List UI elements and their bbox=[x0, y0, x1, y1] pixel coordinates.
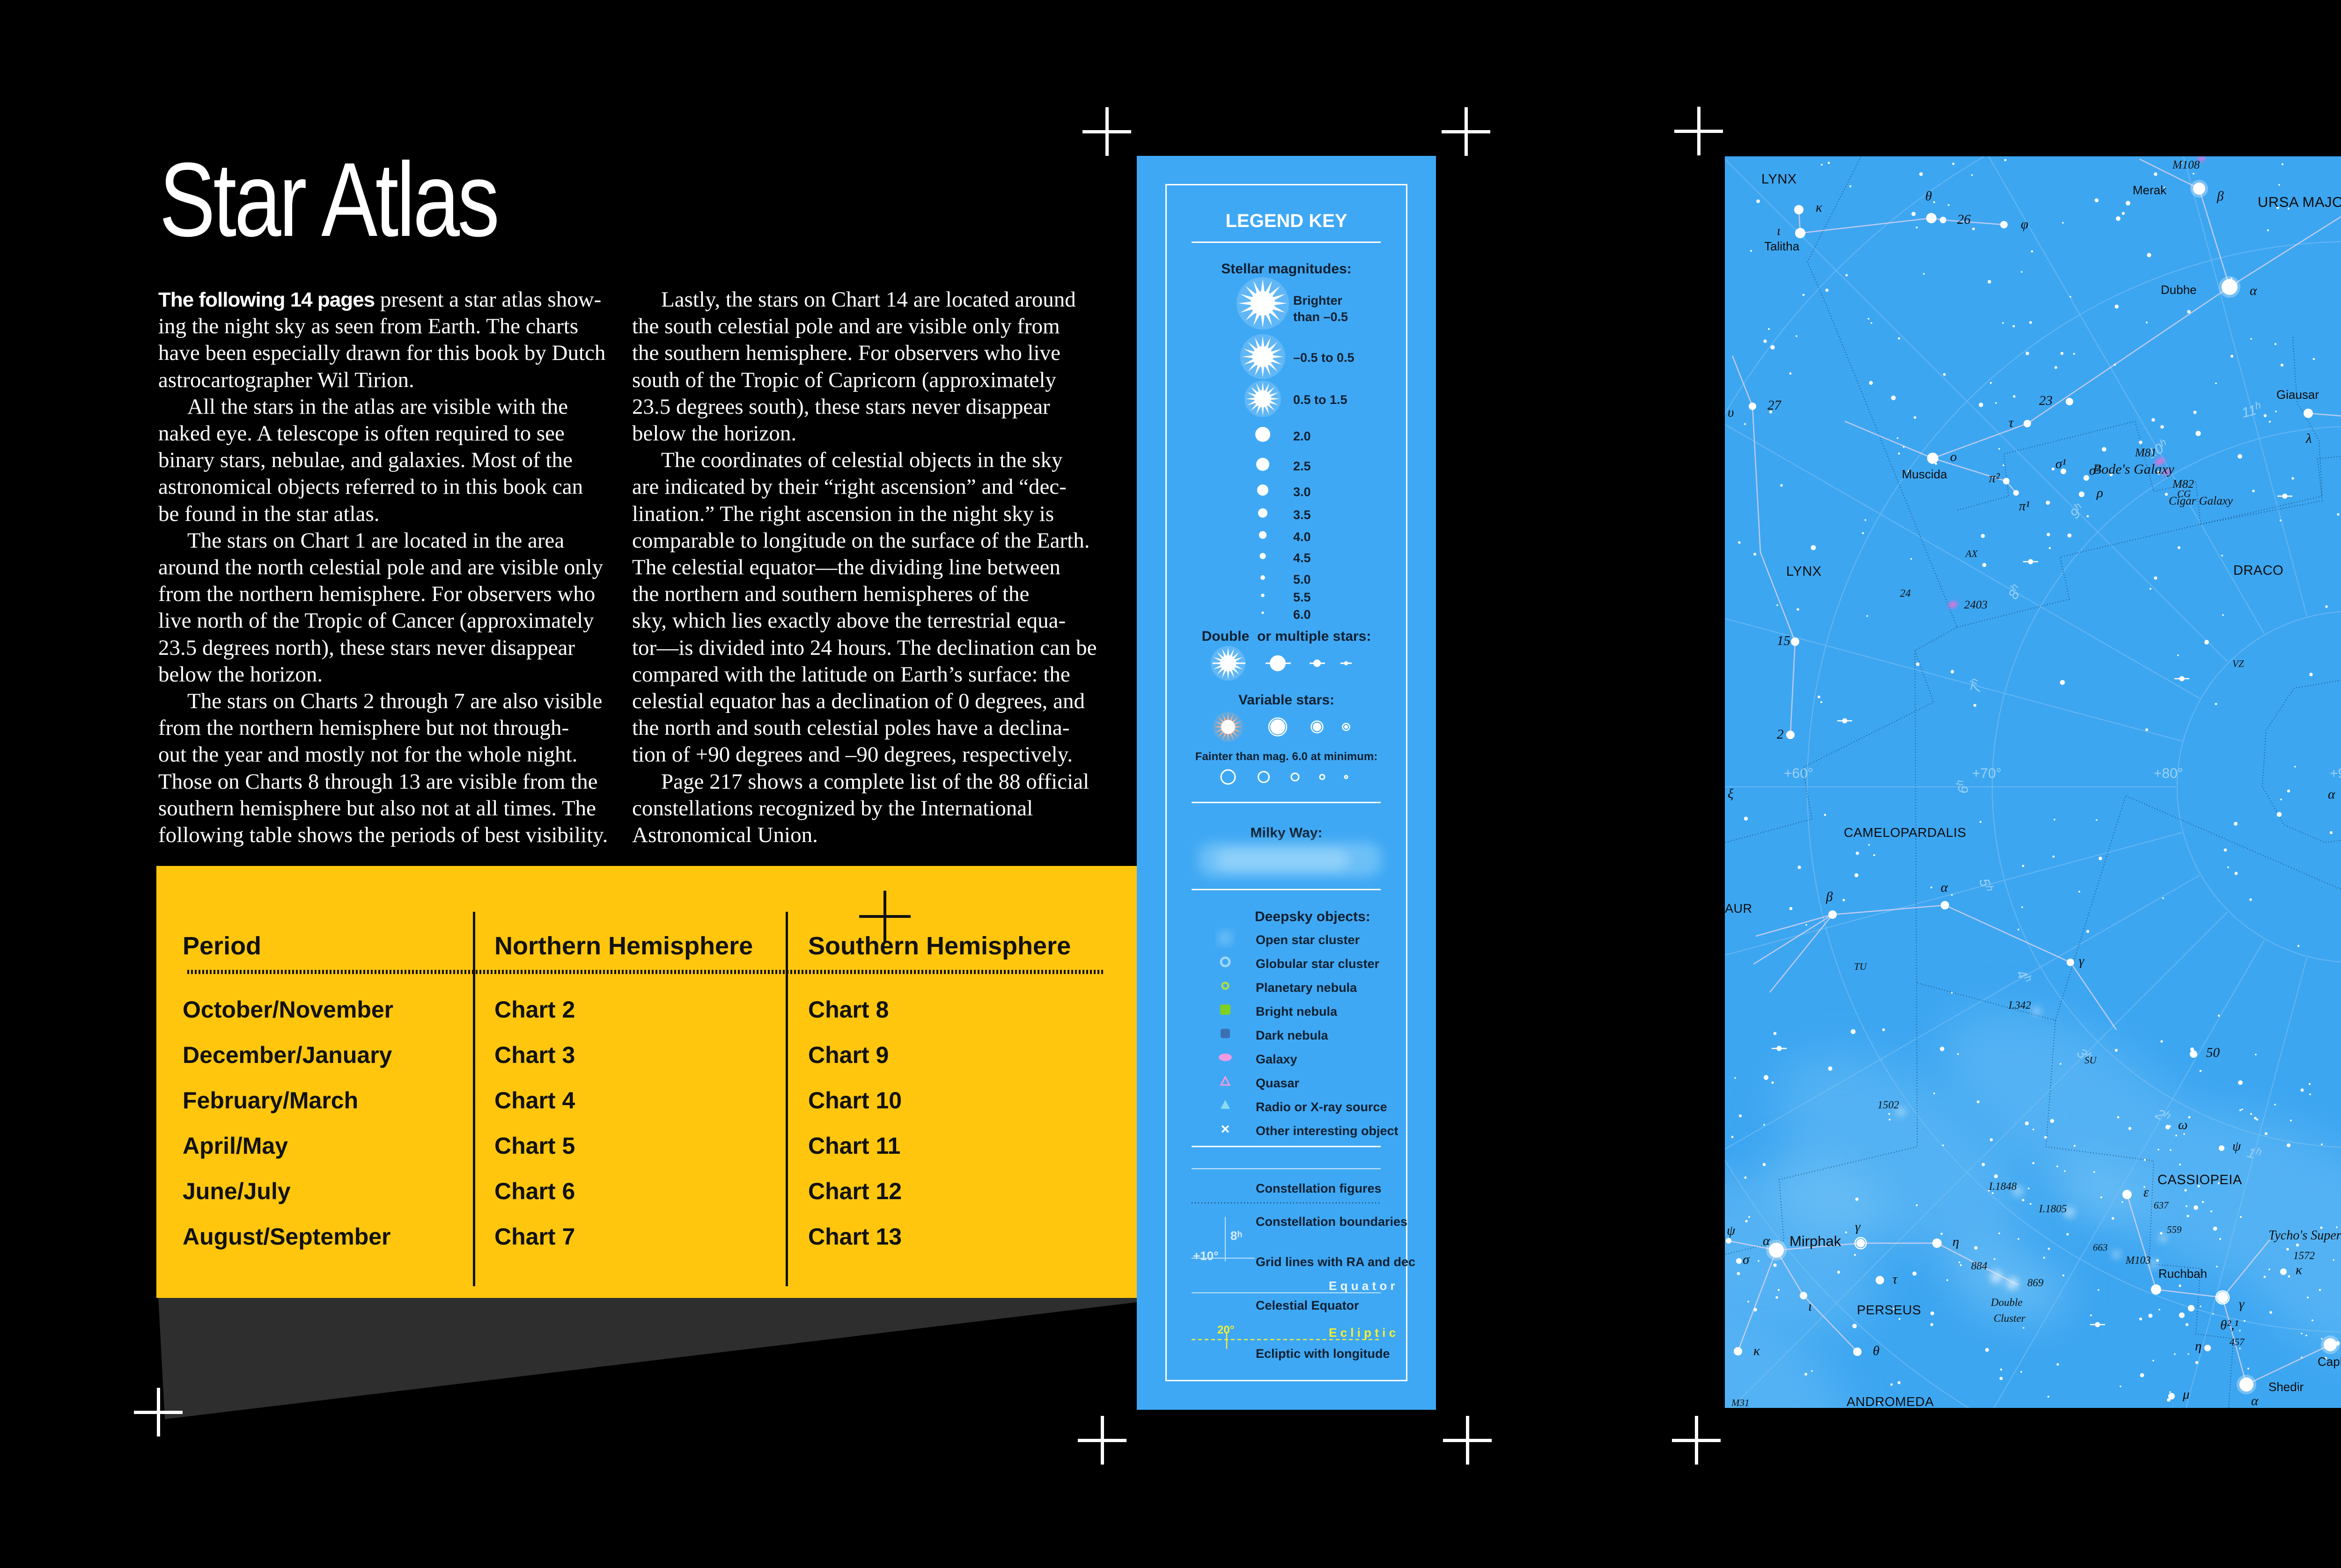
svg-text:+60°: +60° bbox=[1784, 766, 1813, 781]
svg-text:DRACO: DRACO bbox=[2233, 563, 2283, 578]
svg-text:φ: φ bbox=[2021, 217, 2028, 232]
svg-text:LYNX: LYNX bbox=[1786, 564, 1822, 579]
svg-text:+70°: +70° bbox=[1972, 766, 2002, 781]
svg-text:M108: M108 bbox=[2172, 159, 2200, 171]
svg-text:σ: σ bbox=[1743, 1252, 1750, 1267]
svg-text:Caph: Caph bbox=[2318, 1355, 2341, 1369]
svg-text:Cluster: Cluster bbox=[1994, 1312, 2026, 1324]
svg-text:κ: κ bbox=[1753, 1343, 1760, 1358]
svg-text:URSA MAJOR: URSA MAJOR bbox=[2258, 194, 2341, 210]
svg-text:θ: θ bbox=[1873, 1343, 1879, 1358]
svg-text:Bode's Galaxy: Bode's Galaxy bbox=[2093, 462, 2175, 477]
svg-text:PERSEUS: PERSEUS bbox=[1857, 1303, 1921, 1317]
svg-text:I.342: I.342 bbox=[2008, 999, 2031, 1011]
svg-text:Muscida: Muscida bbox=[1902, 467, 1947, 481]
svg-text:ι: ι bbox=[1808, 1299, 1812, 1314]
svg-text:I.1848: I.1848 bbox=[1988, 1180, 2017, 1192]
svg-text:θ²,¹: θ²,¹ bbox=[2220, 1318, 2238, 1333]
svg-text:κ: κ bbox=[2296, 1262, 2303, 1277]
svg-text:σ¹: σ¹ bbox=[2055, 456, 2066, 471]
svg-text:Talitha: Talitha bbox=[1764, 239, 1800, 253]
svg-text:M31: M31 bbox=[1731, 1397, 1750, 1408]
svg-text:TU: TU bbox=[1854, 961, 1868, 972]
svg-text:β: β bbox=[2216, 189, 2224, 204]
svg-text:869: 869 bbox=[2027, 1277, 2044, 1289]
svg-text:κ: κ bbox=[1816, 200, 1823, 215]
svg-text:Giausar: Giausar bbox=[2276, 388, 2319, 402]
svg-text:ξ: ξ bbox=[1728, 786, 1734, 801]
svg-text:VZ: VZ bbox=[2232, 658, 2244, 669]
svg-text:Merak: Merak bbox=[2133, 183, 2167, 197]
svg-text:15: 15 bbox=[1777, 633, 1790, 648]
svg-text:η: η bbox=[1952, 1234, 1959, 1249]
svg-text:M103: M103 bbox=[2125, 1254, 2151, 1266]
svg-text:457: 457 bbox=[2230, 1336, 2245, 1348]
svg-text:π¹: π¹ bbox=[2019, 498, 2030, 513]
svg-text:+90°: +90° bbox=[2330, 766, 2341, 781]
svg-text:η: η bbox=[2195, 1339, 2201, 1354]
svg-text:27: 27 bbox=[1767, 398, 1782, 413]
svg-text:β: β bbox=[1826, 889, 1833, 904]
svg-text:884: 884 bbox=[1971, 1260, 1988, 1272]
svg-text:CG: CG bbox=[2177, 488, 2191, 499]
svg-text:SU: SU bbox=[2084, 1055, 2098, 1066]
svg-text:1572: 1572 bbox=[2293, 1250, 2315, 1261]
svg-text:AUR: AUR bbox=[1725, 901, 1752, 916]
svg-text:α: α bbox=[1941, 880, 1948, 895]
svg-text:π²: π² bbox=[1989, 470, 2001, 485]
svg-text:Mirphak: Mirphak bbox=[1789, 1233, 1841, 1249]
svg-text:υ: υ bbox=[1728, 405, 1734, 420]
svg-text:2: 2 bbox=[1777, 727, 1784, 742]
svg-text:α: α bbox=[2250, 283, 2257, 298]
svg-text:α: α bbox=[2328, 787, 2335, 802]
svg-text:Dubhe: Dubhe bbox=[2161, 283, 2197, 297]
svg-text:τ: τ bbox=[2009, 415, 2014, 430]
svg-text:ψ: ψ bbox=[2232, 1139, 2241, 1154]
svg-text:AX: AX bbox=[1965, 548, 1978, 559]
svg-text:γ: γ bbox=[2079, 953, 2085, 968]
svg-text:23: 23 bbox=[2039, 393, 2053, 408]
svg-text:τ: τ bbox=[1892, 1272, 1898, 1287]
svg-text:ω: ω bbox=[2178, 1117, 2187, 1132]
svg-text:+80°: +80° bbox=[2154, 766, 2183, 781]
svg-text:637: 637 bbox=[2154, 1200, 2169, 1211]
svg-text:ANDROMEDA: ANDROMEDA bbox=[1847, 1394, 1934, 1408]
svg-text:λ: λ bbox=[2305, 431, 2312, 446]
svg-text:ρ: ρ bbox=[2096, 485, 2103, 500]
svg-text:CASSIOPEIA: CASSIOPEIA bbox=[2157, 1172, 2242, 1187]
svg-text:1502: 1502 bbox=[1877, 1099, 1899, 1111]
svg-text:50: 50 bbox=[2206, 1045, 2220, 1060]
svg-text:26: 26 bbox=[1957, 212, 1971, 227]
svg-text:663: 663 bbox=[2093, 1242, 2108, 1253]
svg-text:559: 559 bbox=[2167, 1224, 2182, 1235]
svg-text:Ruchbah: Ruchbah bbox=[2158, 1267, 2207, 1281]
svg-text:γ: γ bbox=[1855, 1219, 1861, 1234]
svg-text:α: α bbox=[2251, 1393, 2259, 1408]
svg-text:I.1805: I.1805 bbox=[2039, 1203, 2067, 1215]
svg-text:LYNX: LYNX bbox=[1761, 172, 1797, 187]
svg-text:M81: M81 bbox=[2135, 447, 2157, 459]
svg-text:ι: ι bbox=[1777, 223, 1781, 238]
svg-text:2403: 2403 bbox=[1964, 599, 1988, 611]
svg-text:Double: Double bbox=[1990, 1297, 2023, 1308]
svg-text:μ: μ bbox=[2182, 1387, 2190, 1402]
svg-text:ε: ε bbox=[2143, 1185, 2149, 1200]
svg-text:γ: γ bbox=[2239, 1297, 2245, 1312]
svg-text:o: o bbox=[1950, 449, 1957, 464]
svg-text:θ: θ bbox=[1925, 189, 1932, 204]
svg-text:ψ: ψ bbox=[1727, 1223, 1736, 1238]
svg-text:Shedir: Shedir bbox=[2268, 1380, 2304, 1394]
svg-text:CAMELOPARDALIS: CAMELOPARDALIS bbox=[1844, 825, 1966, 840]
svg-text:Tycho's Supernova: Tycho's Supernova bbox=[2268, 1228, 2341, 1243]
svg-text:24: 24 bbox=[1900, 587, 1911, 599]
svg-text:α: α bbox=[1763, 1233, 1770, 1248]
